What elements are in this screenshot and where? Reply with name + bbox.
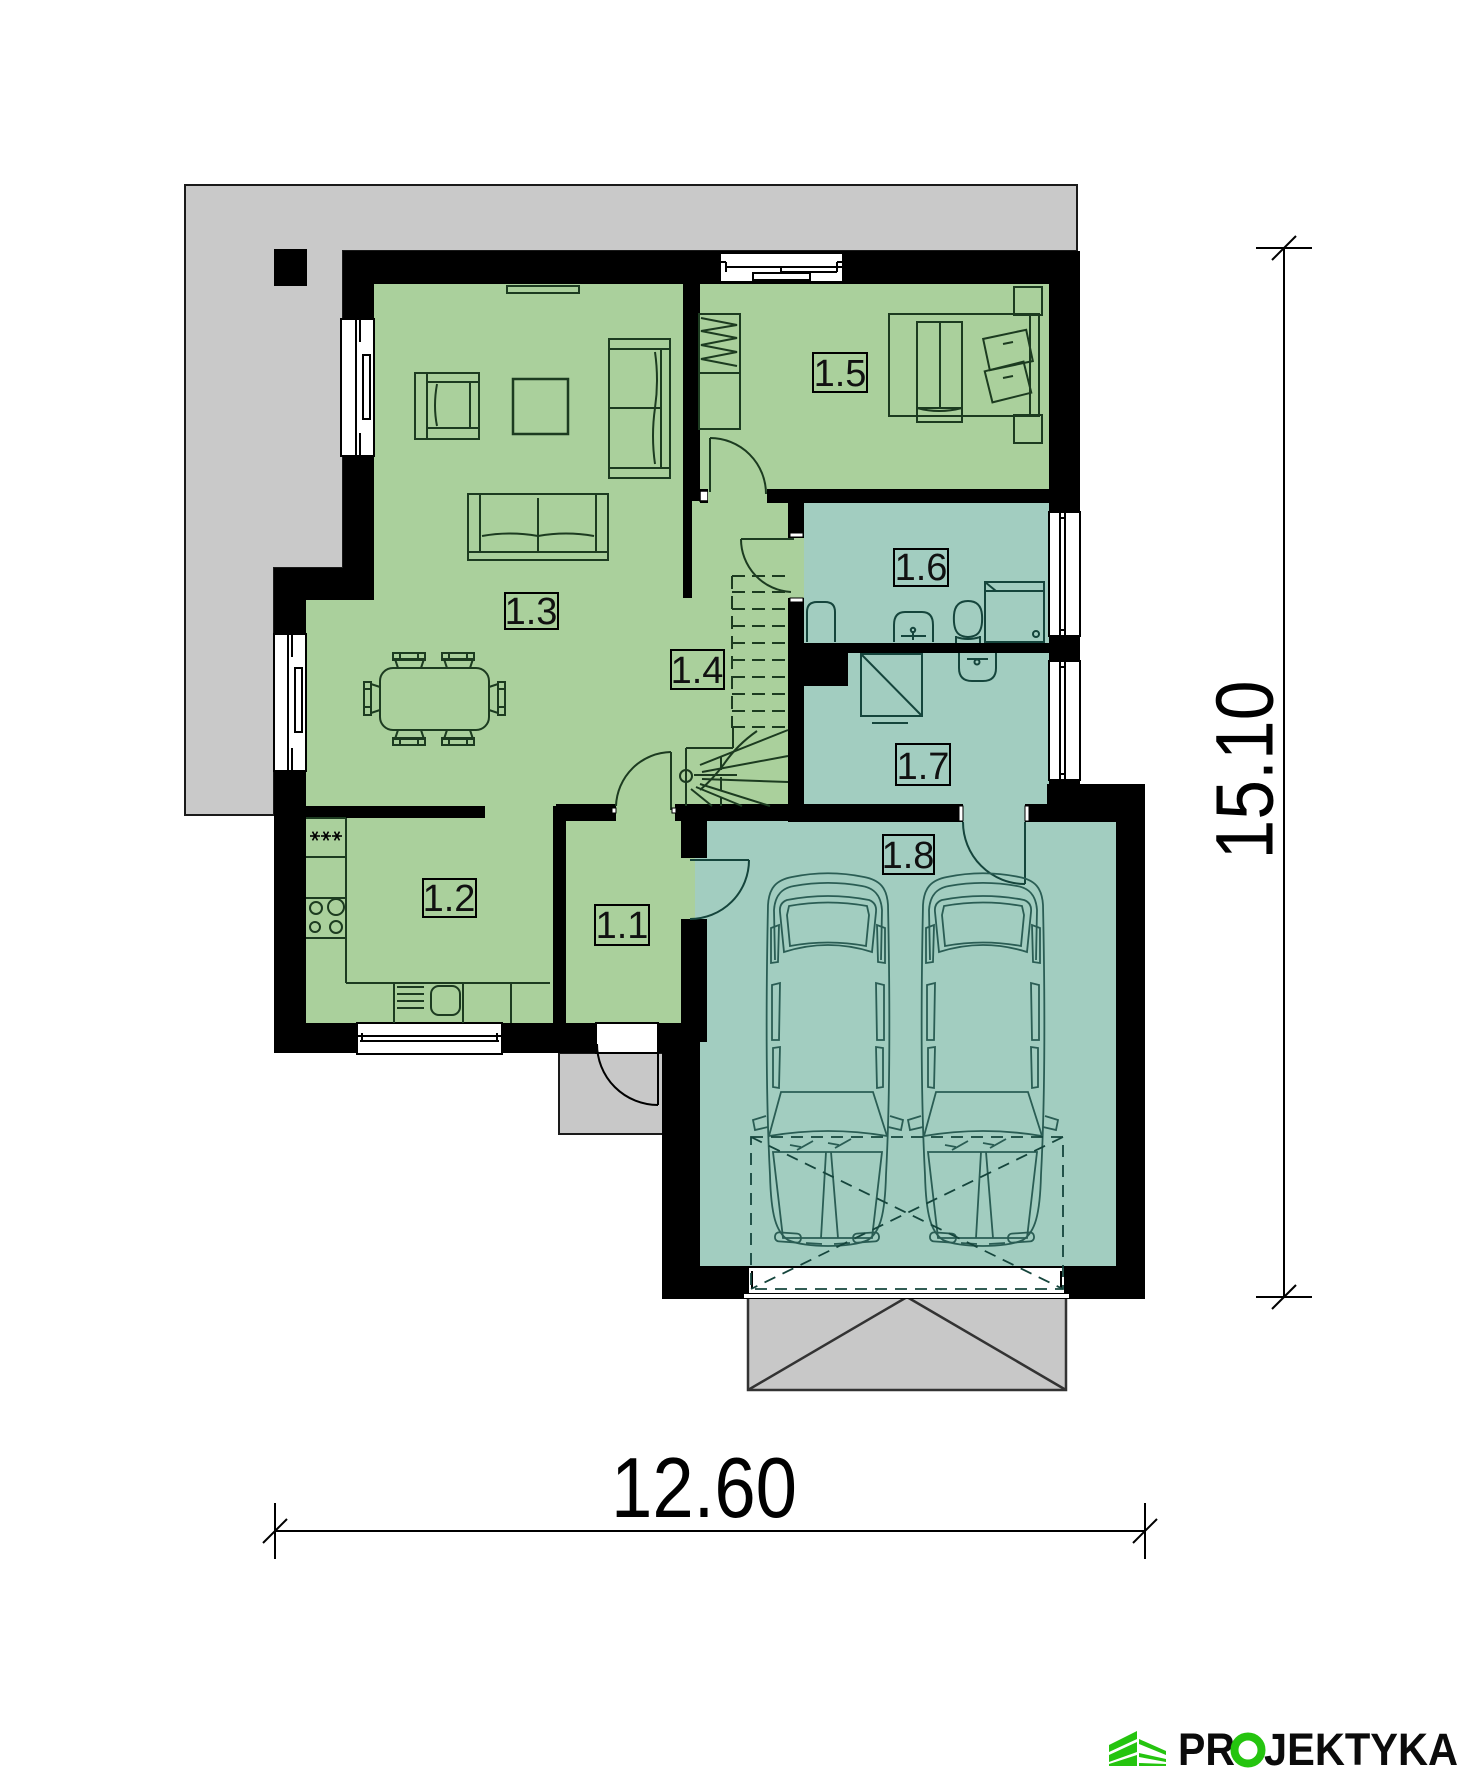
svg-text:15.10: 15.10 (1200, 681, 1291, 860)
svg-text:1.8: 1.8 (882, 835, 935, 877)
svg-text:JEKTYKA: JEKTYKA (1264, 1724, 1458, 1775)
svg-text:1.5: 1.5 (814, 353, 867, 395)
svg-text:12.60: 12.60 (611, 1441, 797, 1536)
svg-text:1.4: 1.4 (671, 650, 724, 692)
svg-text:1.1: 1.1 (596, 905, 649, 947)
svg-text:1.2: 1.2 (423, 878, 476, 920)
svg-text:1.7: 1.7 (897, 746, 950, 788)
svg-text:1.3: 1.3 (505, 591, 558, 633)
svg-text:1.6: 1.6 (895, 547, 948, 589)
svg-text:PR: PR (1178, 1724, 1235, 1775)
